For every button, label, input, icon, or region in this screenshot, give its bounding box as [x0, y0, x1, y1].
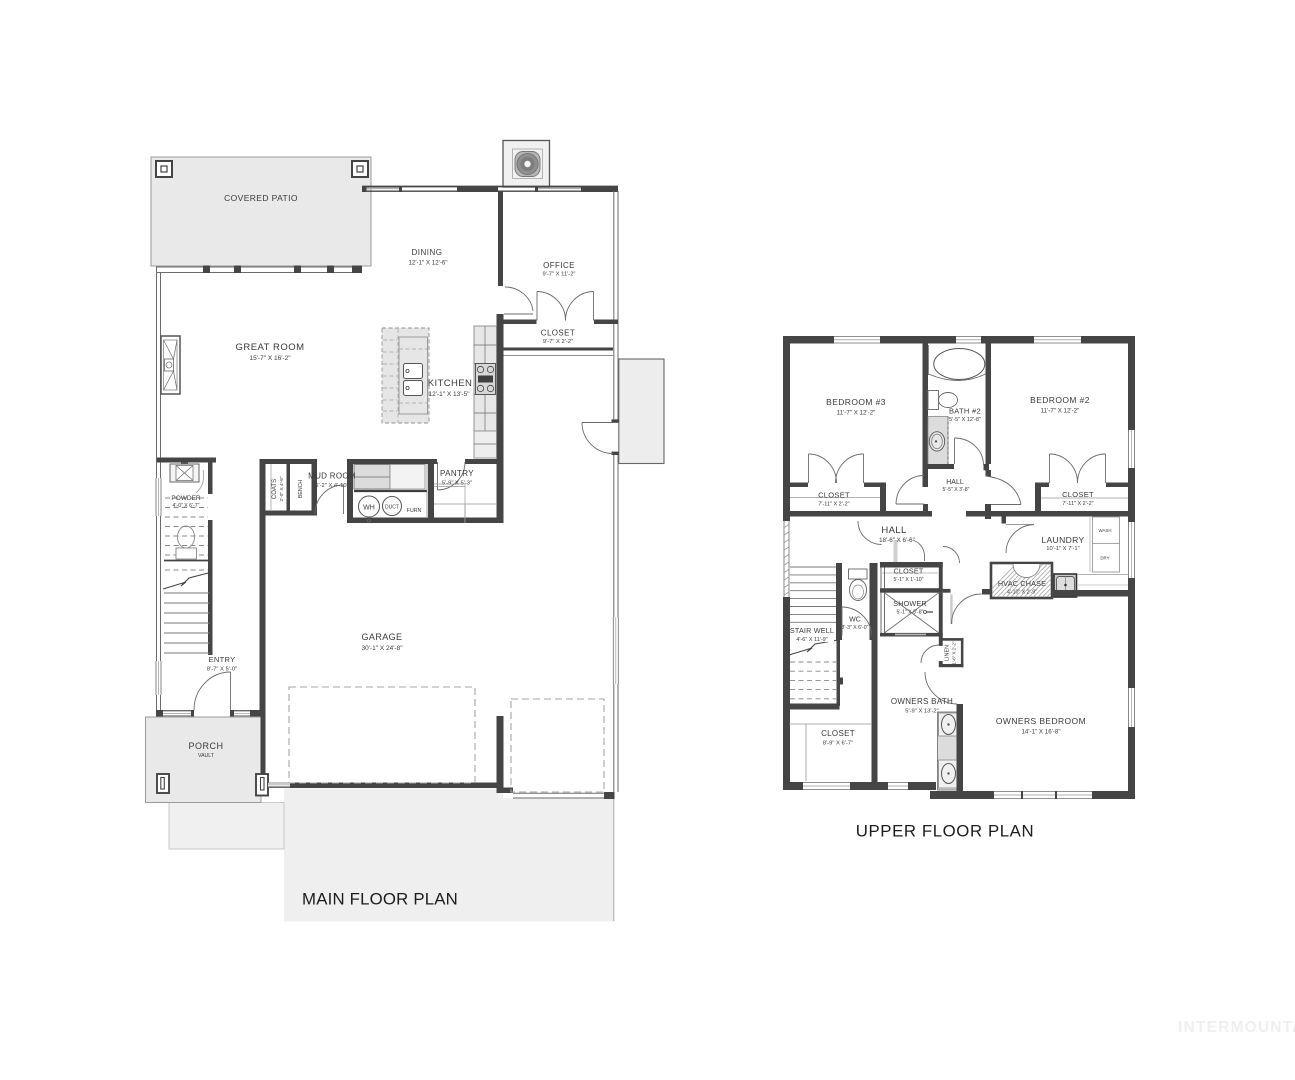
- svg-text:8'-9" X 6'-7": 8'-9" X 6'-7": [823, 741, 853, 747]
- svg-text:WH: WH: [363, 505, 375, 512]
- svg-text:OFFICE: OFFICE: [543, 261, 575, 270]
- svg-text:11'-7" X 12'-2": 11'-7" X 12'-2": [837, 410, 876, 417]
- svg-text:5'-9" X 5'-3": 5'-9" X 5'-3": [442, 481, 472, 487]
- svg-text:UPPER FLOOR PLAN: UPPER FLOOR PLAN: [856, 822, 1034, 841]
- svg-text:CLOSET: CLOSET: [821, 729, 855, 738]
- svg-text:HALL: HALL: [881, 525, 906, 536]
- svg-text:MUD ROOM: MUD ROOM: [308, 472, 356, 481]
- svg-text:12'-1" X 12'-6": 12'-1" X 12'-6": [408, 260, 447, 267]
- svg-text:15'-7" X 16'-2": 15'-7" X 16'-2": [249, 355, 291, 362]
- svg-text:OWNERS BEDROOM: OWNERS BEDROOM: [996, 716, 1086, 726]
- svg-text:FURN: FURN: [407, 508, 422, 514]
- svg-text:COATS: COATS: [272, 479, 278, 499]
- svg-text:18'-6" X 6'-6": 18'-6" X 6'-6": [879, 537, 915, 544]
- svg-text:INTERMOUNTAIN: INTERMOUNTAIN: [1178, 1019, 1295, 1036]
- svg-text:DUCT: DUCT: [385, 505, 399, 511]
- svg-text:CLOSET: CLOSET: [541, 329, 575, 338]
- svg-text:9'-7" X 11'-2": 9'-7" X 11'-2": [543, 272, 576, 278]
- svg-text:DRY: DRY: [1100, 556, 1109, 561]
- svg-text:7'-11" X 2'-2": 7'-11" X 2'-2": [818, 502, 849, 508]
- svg-text:HALL: HALL: [946, 479, 964, 486]
- svg-text:8'-7" X 5'-0": 8'-7" X 5'-0": [207, 667, 237, 673]
- svg-text:PORCH: PORCH: [188, 741, 223, 751]
- svg-text:MAIN FLOOR PLAN: MAIN FLOOR PLAN: [302, 890, 458, 909]
- svg-text:4'-10" X 2'-9": 4'-10" X 2'-9": [1007, 590, 1037, 596]
- svg-text:WASH: WASH: [1098, 528, 1111, 533]
- svg-text:10'-1" X 7'-1": 10'-1" X 7'-1": [1046, 546, 1079, 552]
- svg-text:CLOSET: CLOSET: [894, 567, 924, 576]
- svg-text:PANTRY: PANTRY: [440, 469, 474, 478]
- svg-text:3'-3" X 6'-0": 3'-3" X 6'-0": [841, 625, 868, 631]
- svg-text:11'-7" X 12'-2": 11'-7" X 12'-2": [1041, 408, 1080, 415]
- svg-text:30'-1" X 24'-8": 30'-1" X 24'-8": [361, 645, 403, 652]
- svg-text:SHOWER: SHOWER: [893, 599, 927, 608]
- svg-text:ENTRY: ENTRY: [209, 655, 236, 664]
- svg-text:5'-9" X 13'-2": 5'-9" X 13'-2": [905, 709, 938, 715]
- svg-text:2'-0" X 4'-9": 2'-0" X 4'-9": [279, 476, 285, 501]
- svg-text:BENCH: BENCH: [298, 480, 304, 498]
- svg-text:4'-0" X 6'-7": 4'-0" X 6'-7": [172, 503, 199, 509]
- svg-text:VAULT: VAULT: [198, 753, 215, 759]
- svg-text:12'-1" X 13'-5": 12'-1" X 13'-5": [428, 391, 470, 398]
- svg-text:STAIR WELL: STAIR WELL: [790, 626, 834, 635]
- svg-text:OWNERS BATH: OWNERS BATH: [891, 697, 953, 706]
- svg-text:5'-2" X 4'-10": 5'-2" X 4'-10": [315, 483, 348, 489]
- svg-text:5'-1" X 1'-10": 5'-1" X 1'-10": [894, 577, 924, 583]
- svg-text:4'-6" X 11'-9": 4'-6" X 11'-9": [796, 637, 827, 643]
- svg-text:GARAGE: GARAGE: [362, 632, 403, 642]
- svg-text:CLOSET: CLOSET: [1062, 490, 1094, 499]
- svg-text:COVERED PATIO: COVERED PATIO: [224, 193, 298, 203]
- svg-text:BEDROOM #2: BEDROOM #2: [1030, 395, 1090, 405]
- svg-text:WC: WC: [849, 617, 861, 624]
- svg-text:LAUNDRY: LAUNDRY: [1041, 535, 1084, 545]
- svg-text:1'-6" X 2'-2": 1'-6" X 2'-2": [952, 641, 957, 664]
- svg-text:5'-5" X 3'-8": 5'-5" X 3'-8": [942, 487, 969, 493]
- svg-text:14'-1" X 16'-8": 14'-1" X 16'-8": [1021, 729, 1060, 736]
- svg-text:9'-7" X 2'-2": 9'-7" X 2'-2": [543, 339, 573, 345]
- svg-text:HVAC CHASE: HVAC CHASE: [998, 579, 1046, 588]
- svg-text:BATH #2: BATH #2: [949, 407, 981, 416]
- svg-text:DINING: DINING: [412, 248, 443, 257]
- svg-text:POWDER: POWDER: [171, 495, 201, 502]
- svg-text:KITCHEN: KITCHEN: [428, 378, 473, 389]
- svg-text:LINEN: LINEN: [945, 645, 951, 661]
- svg-text:5'-1" X 3'-8": 5'-1" X 3'-8": [896, 610, 923, 616]
- svg-text:5'-5" X 12'-8": 5'-5" X 12'-8": [949, 417, 981, 423]
- svg-text:CLOSET: CLOSET: [818, 491, 850, 500]
- svg-text:7'-11" X 2'-2": 7'-11" X 2'-2": [1062, 501, 1093, 507]
- svg-text:BEDROOM #3: BEDROOM #3: [826, 397, 886, 407]
- svg-text:GREAT ROOM: GREAT ROOM: [235, 342, 304, 353]
